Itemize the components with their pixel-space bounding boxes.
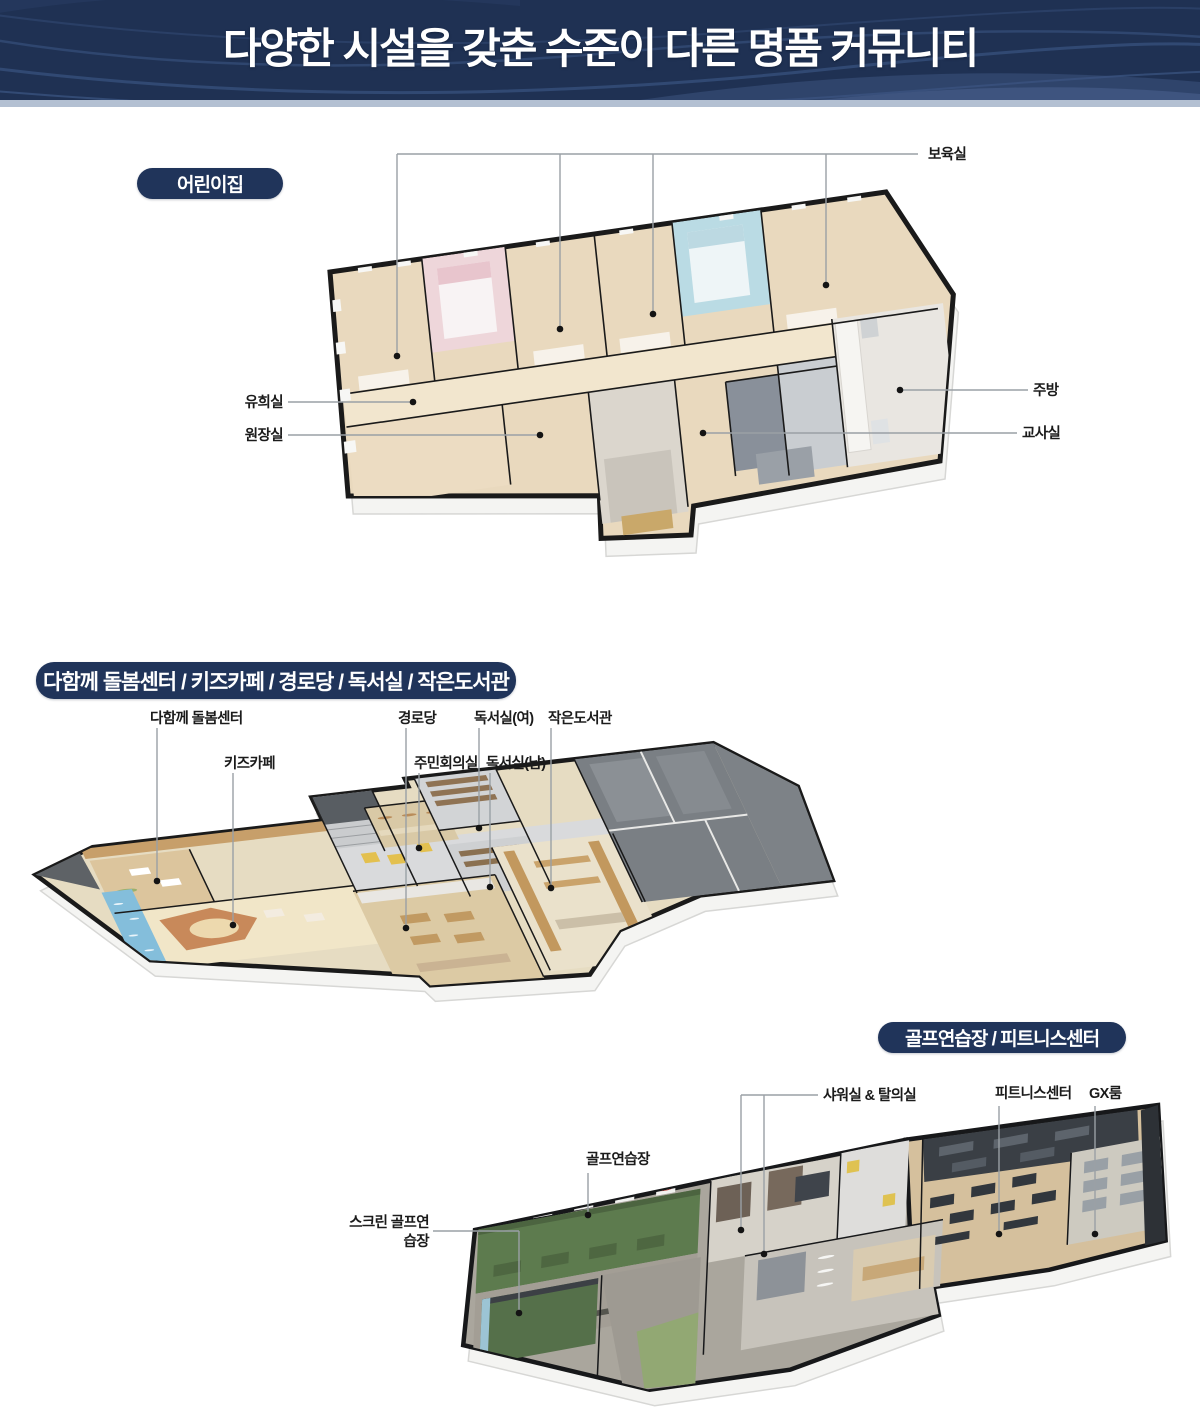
room-label-screen-golf-range: 스크린 골프연습장 bbox=[345, 1214, 429, 1252]
section-pill-daycare: 어린이집 bbox=[137, 168, 283, 199]
golf-fitness-floorplan bbox=[433, 1091, 1177, 1418]
floorplans-canvas bbox=[0, 0, 1200, 1418]
room-label-teachers-room: 교사실 bbox=[1022, 425, 1060, 444]
room-label-playroom: 유희실 bbox=[195, 394, 283, 413]
brochure-page: 다양한 시설을 갖춘 수준이 다른 명품 커뮤니티 어린이집 다함께 돌봄센터 … bbox=[0, 0, 1200, 1418]
room-label-gx-room: GX룸 bbox=[1089, 1085, 1122, 1104]
room-label-kitchen: 주방 bbox=[1033, 382, 1058, 401]
room-label-residents-meeting-room: 주민회의실 bbox=[414, 755, 478, 774]
room-label-golf-range: 골프연습장 bbox=[586, 1151, 650, 1170]
room-label-care-center: 다함께 돌봄센터 bbox=[150, 710, 243, 729]
room-label-small-library: 작은도서관 bbox=[548, 710, 612, 729]
room-label-kids-cafe: 키즈카페 bbox=[224, 755, 275, 774]
room-label-directors-office: 원장실 bbox=[195, 427, 283, 446]
section-pill-golf-fitness: 골프연습장 / 피트니스센터 bbox=[878, 1022, 1126, 1053]
room-label-shower-locker-room: 샤워실 & 탈의실 bbox=[823, 1087, 916, 1106]
page-title: 다양한 시설을 갖춘 수준이 다른 명품 커뮤니티 bbox=[0, 26, 1200, 72]
section-pill-care-center: 다함께 돌봄센터 / 키즈카페 / 경로당 / 독서실 / 작은도서관 bbox=[36, 662, 516, 699]
room-label-nursery: 보육실 bbox=[928, 146, 966, 165]
room-label-senior-center: 경로당 bbox=[398, 710, 436, 729]
room-label-reading-room-women: 독서실(여) bbox=[474, 710, 533, 729]
care-center-floorplan bbox=[5, 728, 876, 1046]
room-label-reading-room-men: 독서실(남) bbox=[486, 755, 545, 774]
room-label-fitness-center: 피트니스센터 bbox=[995, 1085, 1071, 1104]
daycare-floorplan bbox=[288, 154, 1028, 601]
